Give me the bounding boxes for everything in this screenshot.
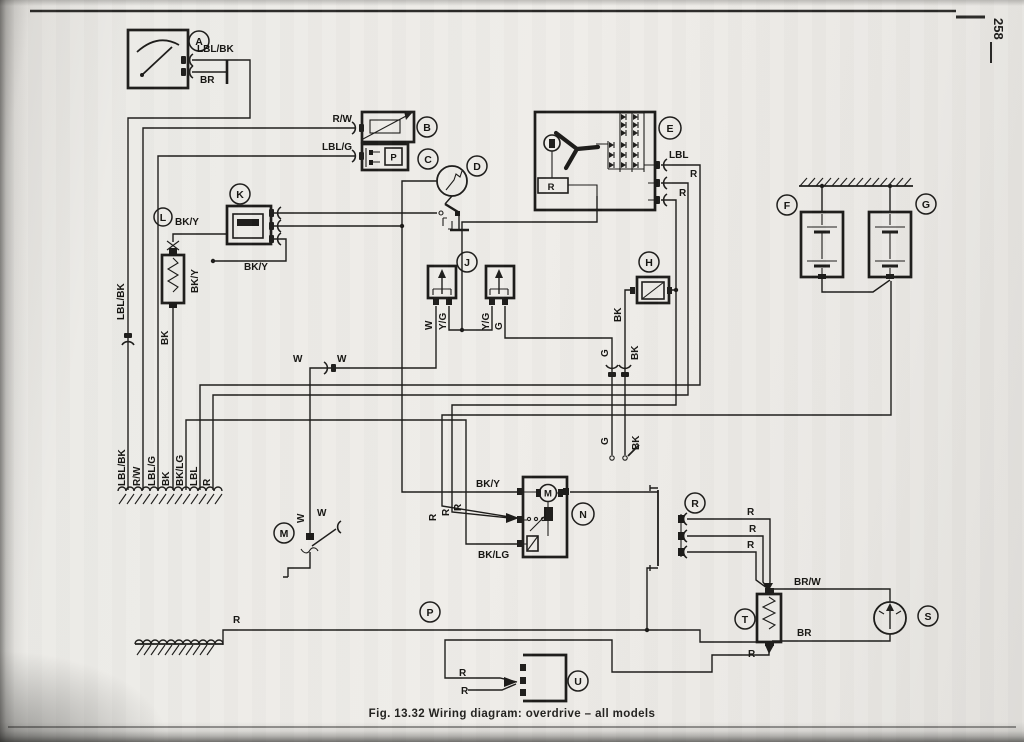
svg-text:K: K (236, 189, 244, 201)
component-h-relay (610, 277, 672, 460)
wire-label-yg-j2: Y/G (481, 313, 492, 330)
scanned-manual-page: 258 Fig. 13.32 Wiring diagram: overdrive… (0, 0, 1024, 742)
pilot-lamp-letter: P (390, 153, 397, 164)
badge-j: J (457, 252, 477, 272)
badge-f: F (777, 195, 797, 215)
svg-text:G: G (922, 199, 930, 211)
svg-text:C: C (424, 154, 432, 166)
svg-text:N: N (579, 509, 587, 521)
bundle-label-bk: BK (161, 471, 172, 486)
bundle-label-rw: R/W (132, 466, 143, 486)
ground-bottom-left (135, 640, 223, 655)
wire-labels-vertical: LBL/BK BK/Y BK W Y/G Y/G G G BK BK G BK … (116, 269, 642, 523)
wire-label-w-conn2: W (337, 354, 347, 365)
component-k-relay (227, 206, 271, 244)
svg-text:M: M (280, 528, 289, 540)
wire-label-r-n3: R (453, 503, 464, 511)
wire-label-w-j: W (424, 320, 435, 330)
wire-label-r-blk3: R (747, 540, 755, 551)
wire-label-r-blk2: R (749, 524, 757, 535)
component-c-pilot-lamp (362, 144, 408, 170)
figure-caption: Fig. 13.32 Wiring diagram: overdrive – a… (369, 708, 656, 720)
wire-label-bky-lv: BK/Y (190, 269, 201, 293)
badge-h: H (639, 252, 659, 272)
wire-label-bky-n: BK/Y (476, 479, 500, 490)
wire-label-w-mv: W (296, 513, 307, 523)
wire-label-lblg-c: LBL/G (322, 142, 352, 153)
wire-label-yg-j1: Y/G (438, 313, 449, 330)
badge-d: D (467, 156, 487, 176)
wire-label-r-p: R (233, 615, 241, 626)
component-g-battery (869, 212, 911, 279)
component-n-overdrive-unit (517, 477, 569, 557)
badge-m: M (274, 523, 294, 543)
badge-r: R (685, 493, 705, 513)
bundle-label-lblg: LBL/G (147, 456, 158, 486)
wire-label-lbl-e: LBL (669, 150, 688, 161)
wire-label-r-e2: R (679, 188, 687, 199)
component-l-resistor (162, 241, 184, 308)
bundle-label-lbl: LBL (189, 467, 200, 486)
svg-text:F: F (784, 200, 791, 212)
badge-u: U (568, 671, 588, 691)
regulator-letter: R (548, 182, 555, 193)
wire-label-g-up: G (600, 349, 611, 357)
badge-c: C (418, 149, 438, 169)
bundle-label-lblbk: LBL/BK (117, 449, 128, 486)
component-b-rheostat (362, 111, 414, 142)
wire-label-bk-l: BK (160, 330, 171, 345)
wire-label-bk-h: BK (613, 307, 624, 322)
svg-text:E: E (666, 123, 673, 135)
wire-label-r-blk1: R (747, 507, 755, 518)
wire-label-w-m: W (317, 508, 327, 519)
badge-s: S (918, 606, 938, 626)
component-badges: A B C D E F G H J K L M N P R S T U (154, 31, 938, 691)
component-d-switch (437, 166, 469, 230)
svg-text:H: H (645, 257, 653, 269)
wire-label-r-n2: R (441, 508, 452, 516)
component-r-connector (650, 485, 684, 571)
badge-p: P (420, 602, 440, 622)
svg-text:L: L (160, 212, 167, 224)
svg-text:P: P (426, 607, 433, 619)
badge-b: B (417, 117, 437, 137)
wire-label-g-dn: G (600, 437, 611, 445)
wiring-diagram: 258 Fig. 13.32 Wiring diagram: overdrive… (0, 0, 1024, 742)
svg-text:R: R (691, 498, 699, 510)
wire-label-br-t: BR (797, 628, 812, 639)
badge-g: G (916, 194, 936, 214)
motor-letter: M (544, 489, 552, 500)
component-s-gauge (874, 602, 906, 634)
badge-t: T (735, 609, 755, 629)
wire-label-bk-dn: BK (631, 435, 642, 450)
page-number: 258 (991, 18, 1006, 40)
wire-label-bk-up: BK (630, 345, 641, 360)
wire-label-r-n1: R (428, 513, 439, 521)
svg-text:D: D (473, 161, 481, 173)
wire-label-lblbk-a: LBL/BK (197, 44, 234, 55)
wire-labels: LBL/BK BR R/W LBL/G LBL R R BK/Y BK/Y W … (175, 44, 821, 697)
wire-label-brw: BR/W (794, 577, 821, 588)
ground-multi-connector (118, 487, 222, 504)
wire-label-r-u2: R (461, 686, 469, 697)
component-t-stabilizer (757, 588, 781, 646)
svg-text:S: S (924, 611, 931, 623)
wire-label-w-conn1: W (293, 354, 303, 365)
component-e-alternator (535, 112, 656, 210)
wire-label-bklg-n: BK/LG (478, 550, 509, 561)
bundle-label-bklg: BK/LG (175, 455, 186, 486)
wire-label-bky-l: BK/Y (175, 217, 199, 228)
badge-k: K (230, 184, 250, 204)
svg-text:T: T (742, 614, 749, 626)
wire-label-bky-k: BK/Y (244, 262, 268, 273)
bundle-label-r: R (202, 478, 213, 486)
svg-text:U: U (574, 676, 582, 688)
svg-text:J: J (464, 257, 470, 269)
component-u-unit (520, 655, 566, 701)
badge-e: E (659, 117, 681, 139)
wire-label-r-e1: R (690, 169, 698, 180)
badge-n: N (572, 503, 594, 525)
wires (128, 60, 892, 690)
wire-label-br-a: BR (200, 75, 215, 86)
wire-label-r-t: R (748, 649, 756, 660)
wire-label-r-u1: R (459, 668, 467, 679)
wire-label-rw-b: R/W (333, 114, 353, 125)
component-f-battery (799, 178, 913, 279)
badge-l: L (154, 208, 172, 226)
wire-label-g-j: G (494, 322, 505, 330)
svg-text:B: B (423, 122, 431, 134)
wire-label-lblbk-mid: LBL/BK (116, 283, 127, 320)
